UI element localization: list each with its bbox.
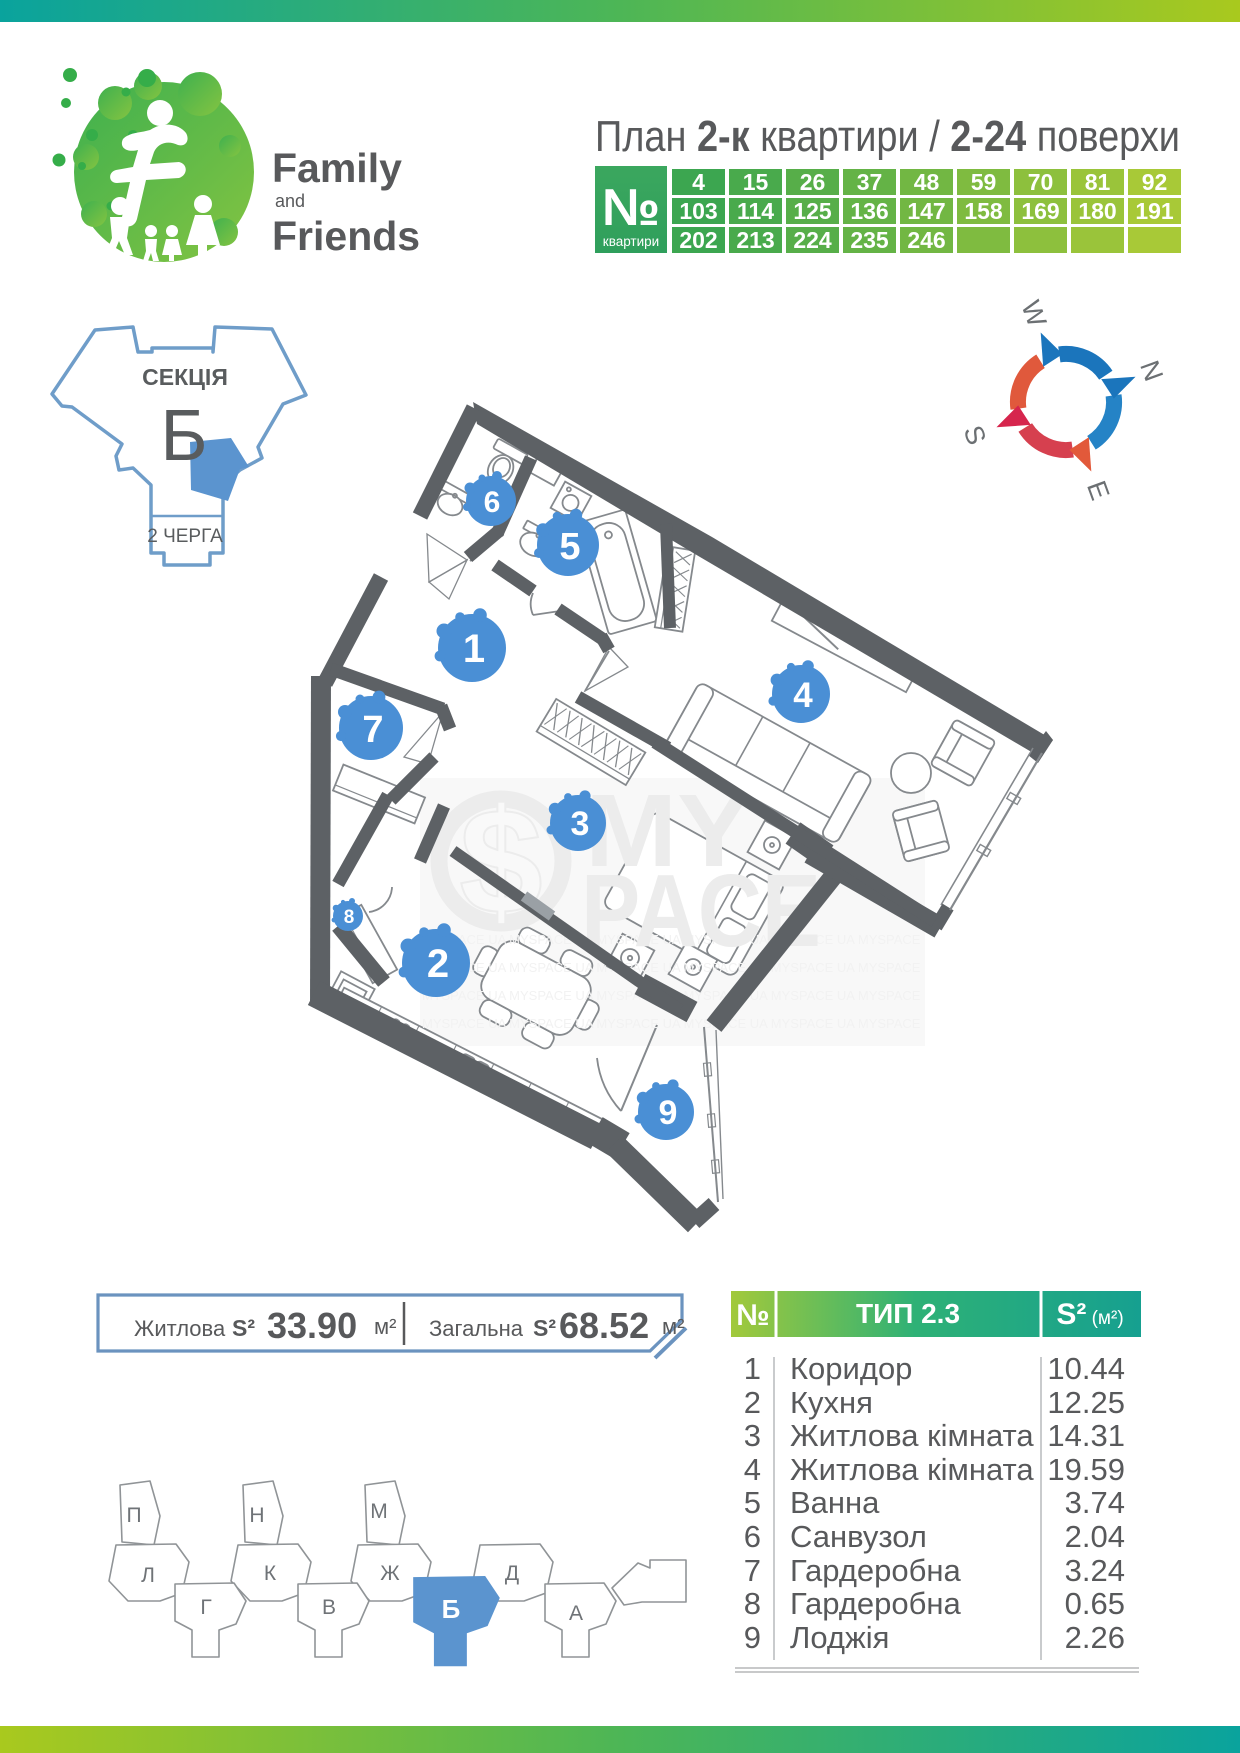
svg-text:Лоджія: Лоджія (790, 1620, 889, 1655)
svg-text:4: 4 (744, 1452, 761, 1487)
svg-text:19.59: 19.59 (1047, 1452, 1125, 1487)
svg-text:Загальна: Загальна (429, 1316, 524, 1341)
svg-text:3.24: 3.24 (1065, 1553, 1125, 1588)
svg-text:180: 180 (1078, 198, 1116, 224)
svg-text:В: В (322, 1596, 336, 1619)
svg-text:Н: Н (249, 1504, 264, 1527)
svg-text:План 2-к квартири / 2-24 повер: План 2-к квартири / 2-24 поверхи (595, 112, 1180, 161)
svg-text:S²: S² (232, 1315, 255, 1341)
svg-text:Friends: Friends (272, 213, 420, 259)
svg-text:№: № (736, 1299, 769, 1332)
svg-text:MYSPACE UA MYSPACE UA MYSPACE: MYSPACE UA MYSPACE UA MYSPACE UA MYSPACE… (422, 988, 1008, 1003)
svg-text:СЕКЦІЯ: СЕКЦІЯ (142, 364, 228, 390)
svg-text:6: 6 (744, 1519, 761, 1554)
svg-text:П: П (126, 1504, 141, 1527)
svg-text:Гардеробна: Гардеробна (790, 1553, 962, 1588)
svg-text:and: and (275, 191, 305, 211)
svg-text:Житлова: Житлова (134, 1316, 226, 1341)
svg-text:70: 70 (1028, 169, 1054, 195)
svg-text:Б: Б (160, 396, 207, 476)
svg-text:Коридор: Коридор (790, 1351, 912, 1386)
svg-text:4: 4 (793, 676, 813, 715)
svg-text:2: 2 (427, 942, 449, 986)
svg-text:235: 235 (850, 227, 889, 253)
svg-text:А: А (569, 1602, 583, 1625)
svg-text:№: № (602, 179, 660, 237)
svg-text:1: 1 (463, 627, 485, 671)
svg-text:92: 92 (1142, 169, 1168, 195)
svg-text:Ж: Ж (380, 1562, 400, 1585)
svg-text:8: 8 (344, 907, 355, 928)
svg-text:ТИП 2.3: ТИП 2.3 (856, 1298, 960, 1329)
svg-text:59: 59 (971, 169, 997, 195)
svg-text:9: 9 (659, 1094, 678, 1132)
svg-text:33.90: 33.90 (267, 1305, 357, 1346)
svg-text:3: 3 (744, 1418, 761, 1453)
svg-text:м²: м² (662, 1314, 684, 1339)
svg-text:Б: Б (442, 1594, 461, 1624)
svg-text:2: 2 (744, 1385, 761, 1420)
svg-text:125: 125 (793, 198, 832, 224)
svg-text:1: 1 (744, 1351, 761, 1386)
svg-text:3: 3 (571, 805, 590, 843)
svg-text:Санвузол: Санвузол (790, 1519, 927, 1554)
svg-text:213: 213 (736, 227, 774, 253)
svg-text:12.25: 12.25 (1047, 1385, 1125, 1420)
svg-text:Л: Л (141, 1564, 155, 1587)
svg-text:10.44: 10.44 (1047, 1351, 1125, 1386)
svg-text:Житлова кімната: Житлова кімната (790, 1418, 1034, 1453)
svg-text:114: 114 (737, 198, 774, 224)
svg-text:М: М (370, 1500, 388, 1523)
svg-text:S²: S² (533, 1315, 556, 1341)
svg-text:4: 4 (692, 169, 705, 195)
svg-text:квартири: квартири (603, 234, 659, 249)
svg-text:7: 7 (362, 709, 383, 751)
svg-text:Д: Д (505, 1562, 519, 1585)
svg-text:Ванна: Ванна (790, 1485, 880, 1520)
svg-text:7: 7 (744, 1553, 761, 1588)
svg-text:15: 15 (743, 169, 769, 195)
svg-text:202: 202 (679, 227, 717, 253)
svg-text:191: 191 (1135, 198, 1174, 224)
svg-text:Гардеробна: Гардеробна (790, 1586, 962, 1621)
svg-text:103: 103 (679, 198, 717, 224)
svg-text:48: 48 (914, 169, 940, 195)
svg-text:Family: Family (272, 145, 402, 191)
svg-text:2.04: 2.04 (1065, 1519, 1125, 1554)
svg-text:Кухня: Кухня (790, 1385, 873, 1420)
svg-text:147: 147 (907, 198, 945, 224)
svg-text:0.65: 0.65 (1065, 1586, 1125, 1621)
svg-text:5: 5 (744, 1485, 761, 1520)
svg-text:9: 9 (744, 1620, 761, 1655)
svg-text:Житлова кімната: Житлова кімната (790, 1452, 1034, 1487)
svg-text:26: 26 (800, 169, 826, 195)
svg-text:158: 158 (964, 198, 1003, 224)
svg-text:224: 224 (793, 227, 832, 253)
svg-text:м²: м² (374, 1314, 396, 1339)
svg-text:246: 246 (907, 227, 945, 253)
svg-text:8: 8 (744, 1586, 761, 1621)
svg-text:68.52: 68.52 (559, 1305, 649, 1346)
svg-text:6: 6 (484, 486, 501, 519)
svg-text:169: 169 (1021, 198, 1059, 224)
svg-text:5: 5 (559, 526, 580, 568)
svg-text:136: 136 (850, 198, 888, 224)
svg-text:2.26: 2.26 (1065, 1620, 1125, 1655)
svg-text:81: 81 (1085, 169, 1111, 195)
svg-text:2 ЧЕРГА: 2 ЧЕРГА (147, 526, 223, 547)
svg-text:14.31: 14.31 (1047, 1418, 1125, 1453)
svg-text:37: 37 (857, 169, 883, 195)
svg-text:Г: Г (200, 1596, 211, 1619)
svg-text:К: К (264, 1562, 277, 1585)
svg-text:3.74: 3.74 (1065, 1485, 1125, 1520)
